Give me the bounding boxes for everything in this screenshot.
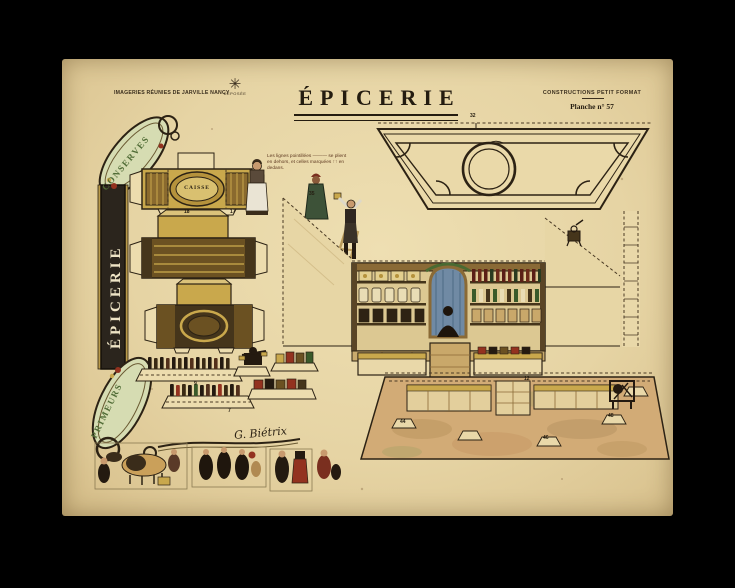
plate-number: Planche n° 57 xyxy=(526,102,658,111)
trademark-label: DÉPOSÉE xyxy=(218,91,252,96)
model-piece-counter-top xyxy=(130,210,267,278)
model-piece-bottle-shelf-1 xyxy=(136,357,242,381)
tab-number: 32 xyxy=(470,113,476,119)
wall-alcove-doorway xyxy=(426,264,470,337)
cutout-figures-group-2 xyxy=(192,447,266,487)
figure-shopkeeper-woman xyxy=(246,159,268,215)
title-underline xyxy=(294,114,458,121)
illustration-canvas: CONSERVES ÉPICERIE PRIMEURS xyxy=(62,59,673,516)
tab-number: 35 xyxy=(309,191,315,197)
tab-number: 17 xyxy=(230,209,236,215)
series-label: CONSTRUCTIONS PETIT FORMAT xyxy=(526,90,658,96)
tab-number: 18 xyxy=(184,209,190,215)
tab-number: 7 xyxy=(228,408,231,414)
frame-word-epicerie-vertical: ÉPICERIE xyxy=(107,244,124,349)
tab-number: 44 xyxy=(400,419,406,425)
cash-desk-label: CAISSE xyxy=(179,185,215,191)
model-piece-counter-oval xyxy=(145,279,264,353)
star-emblem-icon: ✳ xyxy=(218,77,252,92)
cutout-figures-group-4 xyxy=(317,450,341,481)
model-piece-bottle-shelf-2 xyxy=(162,384,254,408)
paper-sheet: CONSERVES ÉPICERIE PRIMEURS xyxy=(62,59,673,516)
tab-number: 9 xyxy=(194,381,197,387)
folding-instructions: Les lignes pointillées ——— se plient en … xyxy=(267,154,367,173)
page-title: ÉPICERIE xyxy=(286,85,466,111)
side-wall-flap-right xyxy=(545,211,640,347)
tab-number: 48 xyxy=(608,413,614,419)
trademark-emblem: ✳ DÉPOSÉE xyxy=(218,77,252,96)
tab-number: 46 xyxy=(543,435,549,441)
series-rule xyxy=(582,98,604,99)
model-piece-goods-shelf xyxy=(271,352,318,371)
model-piece-scale xyxy=(234,347,270,376)
cutout-figures-group-3 xyxy=(270,449,312,491)
instructions-line-3: dedans. xyxy=(267,166,367,172)
side-wall-flap-left xyxy=(283,198,352,346)
model-piece-goods-shelf-2 xyxy=(248,379,316,399)
photo-background: CONSERVES ÉPICERIE PRIMEURS xyxy=(0,0,735,588)
cutout-figures-group-1 xyxy=(95,443,187,489)
model-piece-ceiling xyxy=(378,123,652,209)
tab-number: 12 xyxy=(524,376,530,382)
